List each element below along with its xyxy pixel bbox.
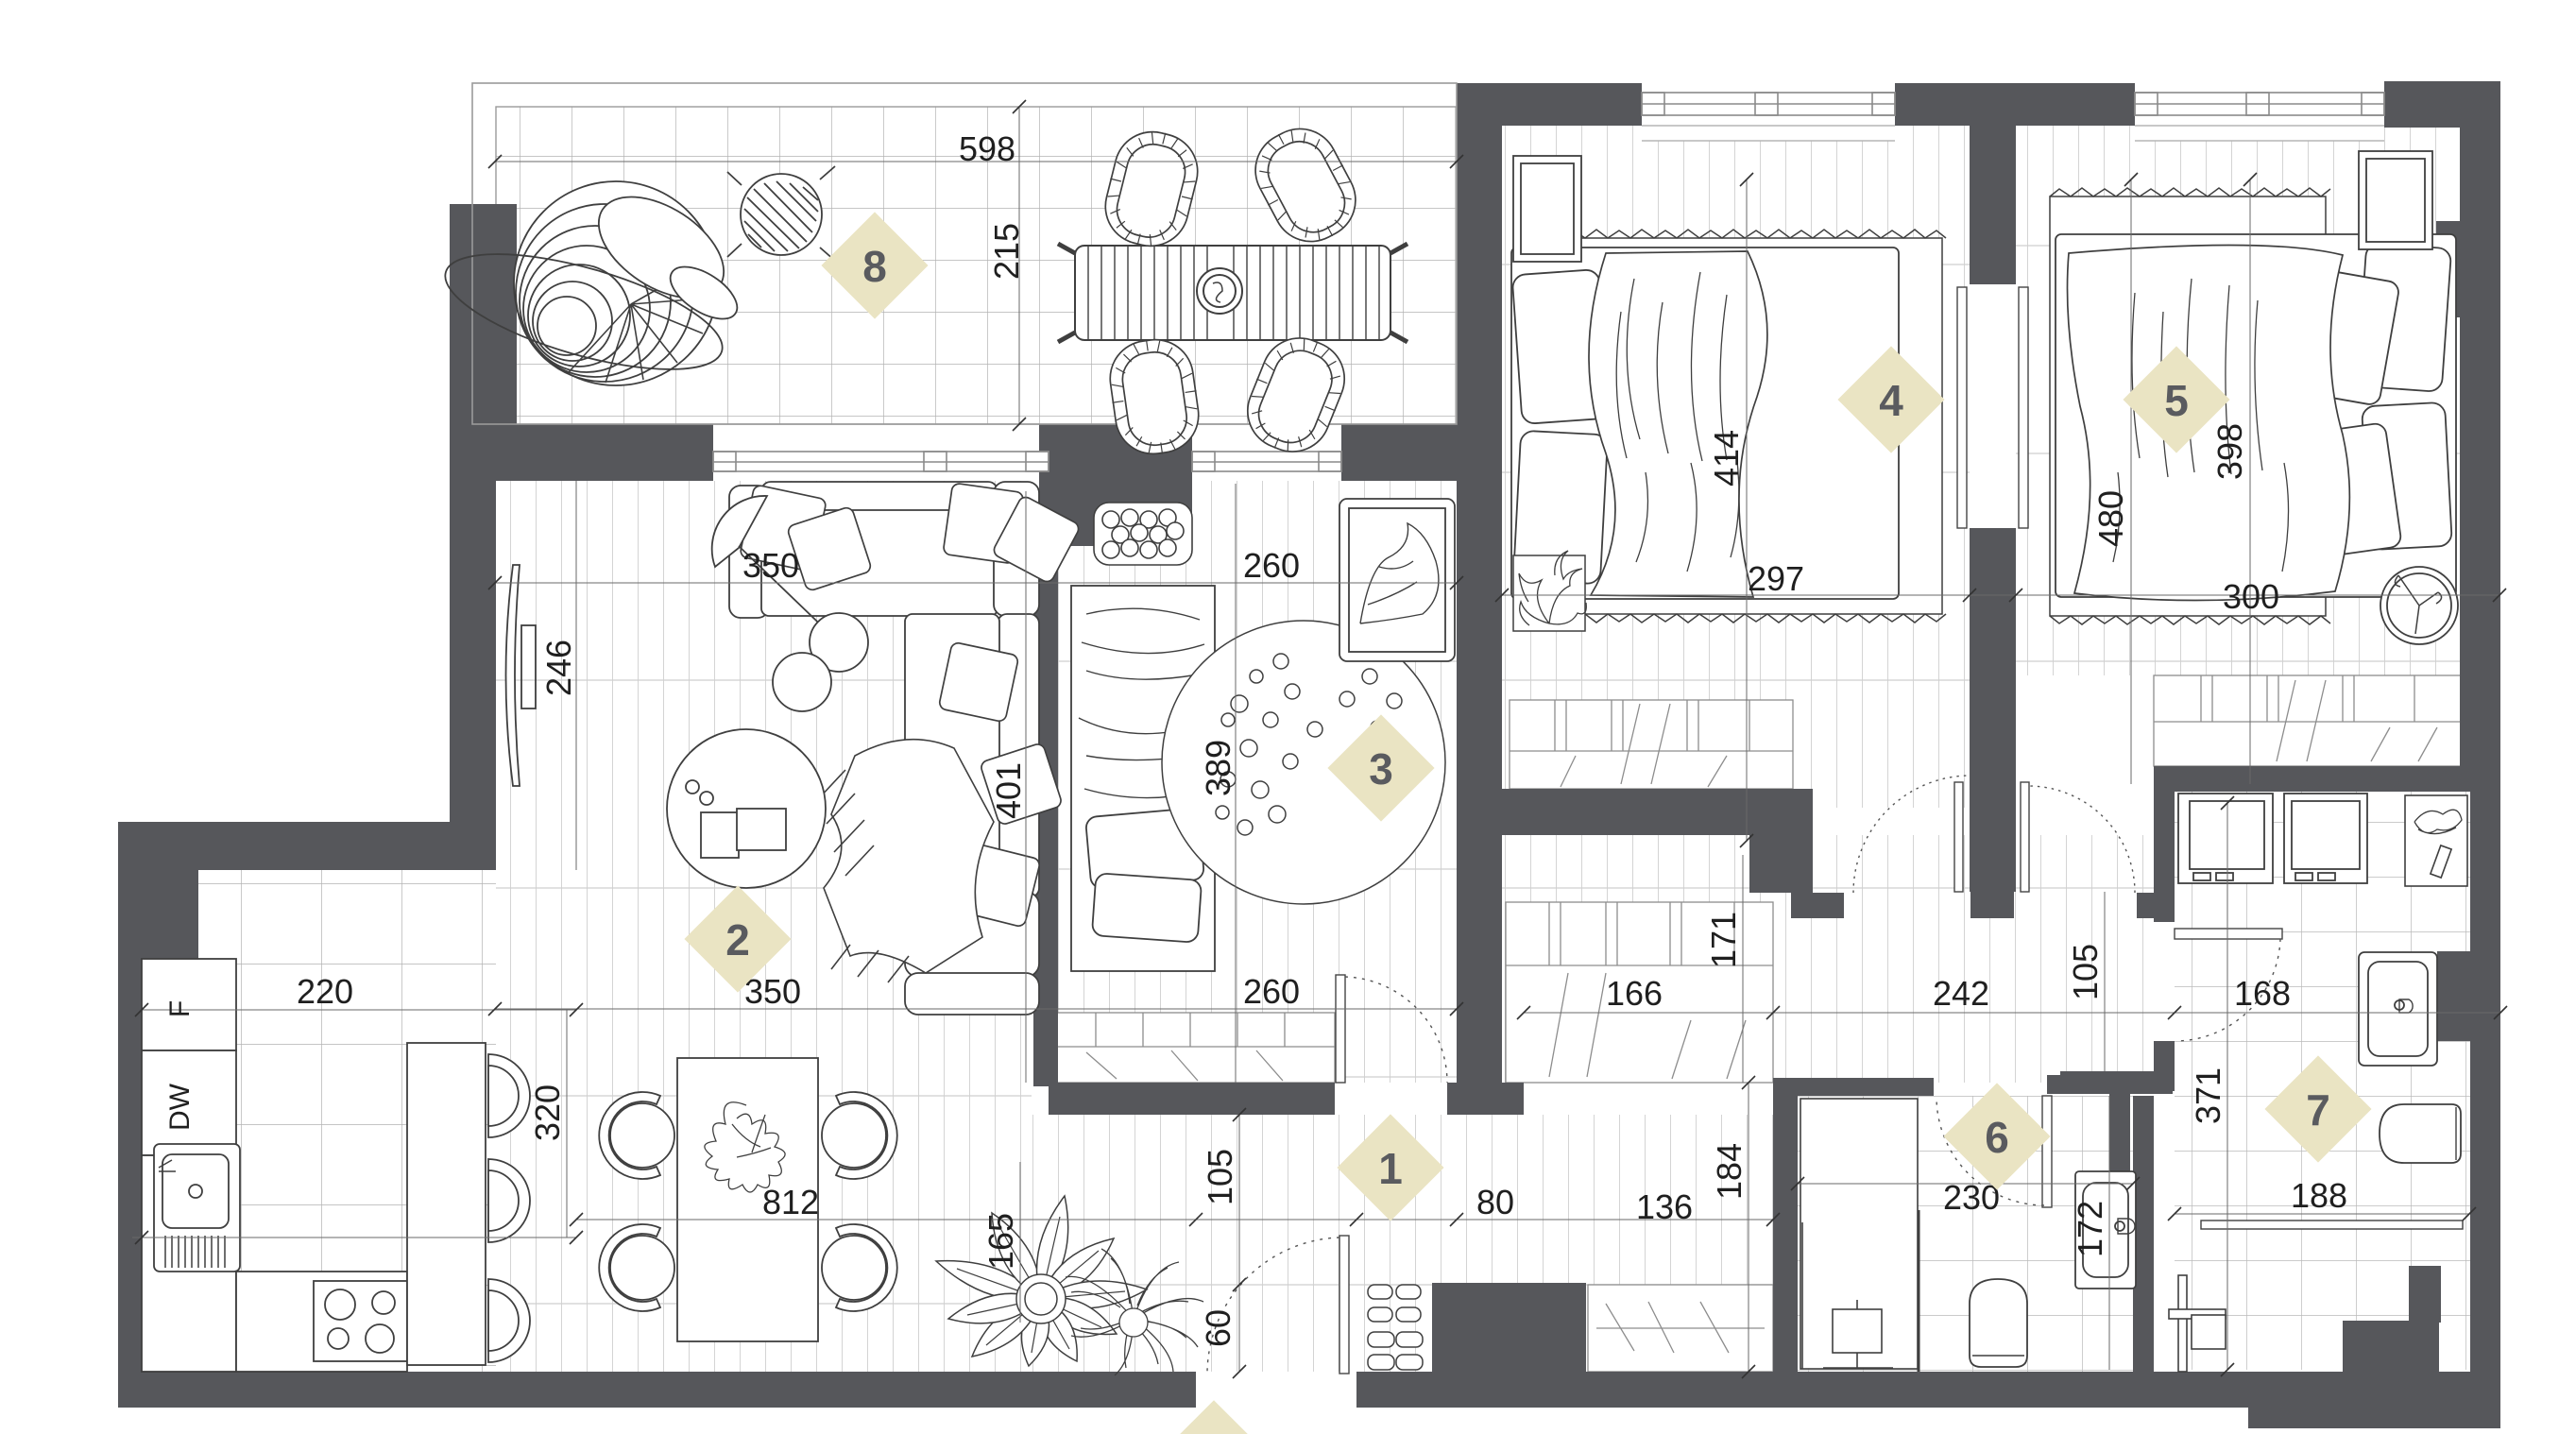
svg-text:300: 300 [2223,577,2279,616]
svg-text:812: 812 [762,1183,819,1221]
svg-text:320: 320 [528,1084,567,1141]
svg-text:242: 242 [1933,974,1989,1013]
svg-text:2: 2 [725,915,750,965]
svg-text:3: 3 [1369,744,1393,794]
svg-text:598: 598 [959,129,1015,168]
svg-text:8: 8 [862,242,887,291]
svg-text:260: 260 [1243,972,1300,1011]
svg-text:260: 260 [1243,546,1300,585]
svg-text:480: 480 [2091,490,2130,547]
svg-text:105: 105 [2066,944,2105,1000]
svg-text:220: 220 [297,972,353,1011]
svg-text:389: 389 [1199,740,1237,796]
svg-text:184: 184 [1710,1143,1749,1200]
svg-text:1: 1 [1378,1144,1403,1193]
svg-text:4: 4 [1879,376,1903,425]
svg-text:371: 371 [2189,1067,2227,1124]
svg-text:5: 5 [2164,376,2189,425]
svg-text:136: 136 [1636,1187,1693,1226]
svg-text:F: F [164,1000,196,1017]
svg-text:60: 60 [1199,1309,1237,1347]
svg-text:188: 188 [2291,1176,2347,1215]
svg-text:168: 168 [2234,974,2291,1013]
svg-text:166: 166 [1606,974,1663,1013]
svg-text:171: 171 [1704,912,1743,968]
svg-text:105: 105 [1201,1149,1239,1205]
svg-text:165: 165 [981,1213,1020,1270]
svg-text:215: 215 [987,223,1026,280]
svg-text:297: 297 [1748,559,1804,598]
svg-text:414: 414 [1707,430,1746,487]
svg-text:246: 246 [539,640,578,696]
svg-text:172: 172 [2071,1201,2109,1257]
svg-text:398: 398 [2210,423,2249,480]
svg-text:401: 401 [989,762,1028,819]
svg-text:7: 7 [2306,1085,2330,1135]
svg-text:350: 350 [742,546,799,585]
svg-text:6: 6 [1985,1113,2009,1162]
svg-text:DW: DW [164,1083,196,1131]
svg-text:80: 80 [1476,1183,1514,1221]
svg-text:350: 350 [744,972,801,1011]
